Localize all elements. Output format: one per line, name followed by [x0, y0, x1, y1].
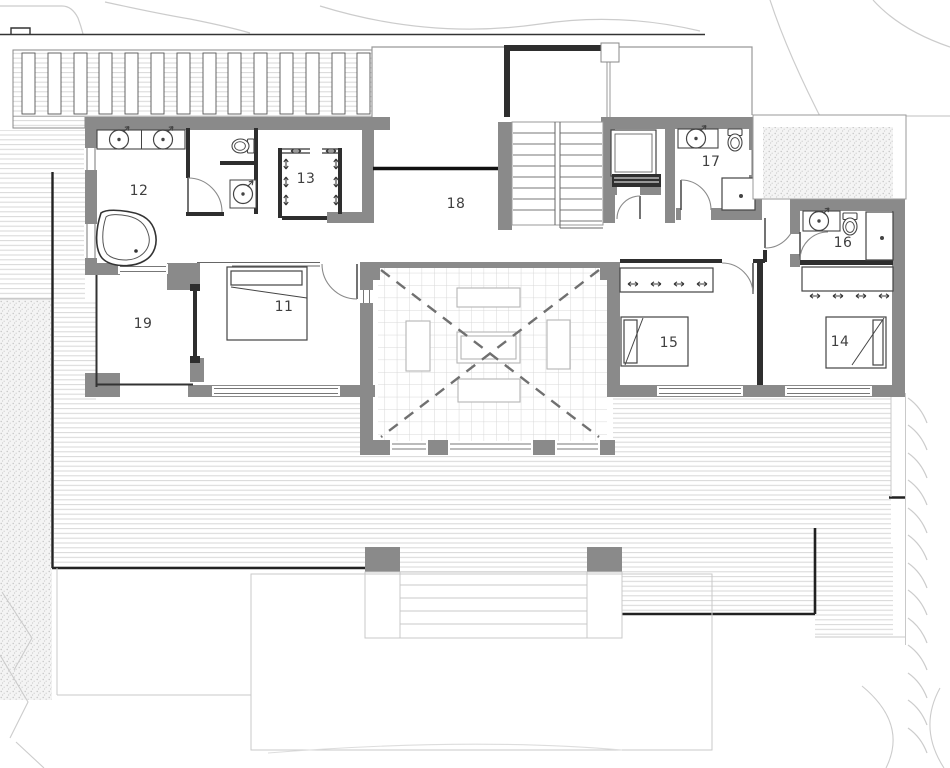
toilet-icon: [843, 213, 857, 235]
room-label-15: 15: [660, 335, 679, 351]
deck-steps: [365, 572, 622, 638]
bed-room11: [227, 267, 307, 340]
staircase-icon: [512, 122, 603, 228]
room-label-13: 13: [297, 171, 316, 187]
room-label-19: 19: [134, 316, 153, 332]
room-label-11: 11: [275, 299, 294, 315]
room-label-17: 17: [702, 154, 721, 170]
shower-icon: [866, 212, 893, 260]
site-boundary-line: [0, 28, 705, 35]
bathtub-icon: [97, 210, 156, 265]
washing-machine-icon: [611, 130, 656, 176]
gravel-roof-terrace: [753, 115, 906, 199]
floor-plan: 11 12 13 14 15 16 17 18 19: [0, 0, 950, 768]
floor-plan-drawing: 11 12 13 14 15 16 17 18 19: [0, 0, 950, 768]
slope-hatch-right: [908, 398, 927, 753]
room-label-14: 14: [831, 334, 850, 350]
shower-icon: [722, 178, 755, 210]
pergola-roof: [13, 50, 372, 128]
toilet-icon: [232, 139, 254, 153]
wardrobe-room15: [620, 268, 713, 292]
gravel-strip-left: [0, 299, 52, 700]
bench: [612, 174, 661, 187]
room-label-16: 16: [834, 235, 853, 251]
room-label-12: 12: [130, 183, 149, 199]
void-open-to-below: [378, 267, 607, 441]
toilet-icon: [728, 129, 742, 151]
laundry-closet: [611, 130, 661, 187]
room-label-18: 18: [447, 196, 466, 212]
